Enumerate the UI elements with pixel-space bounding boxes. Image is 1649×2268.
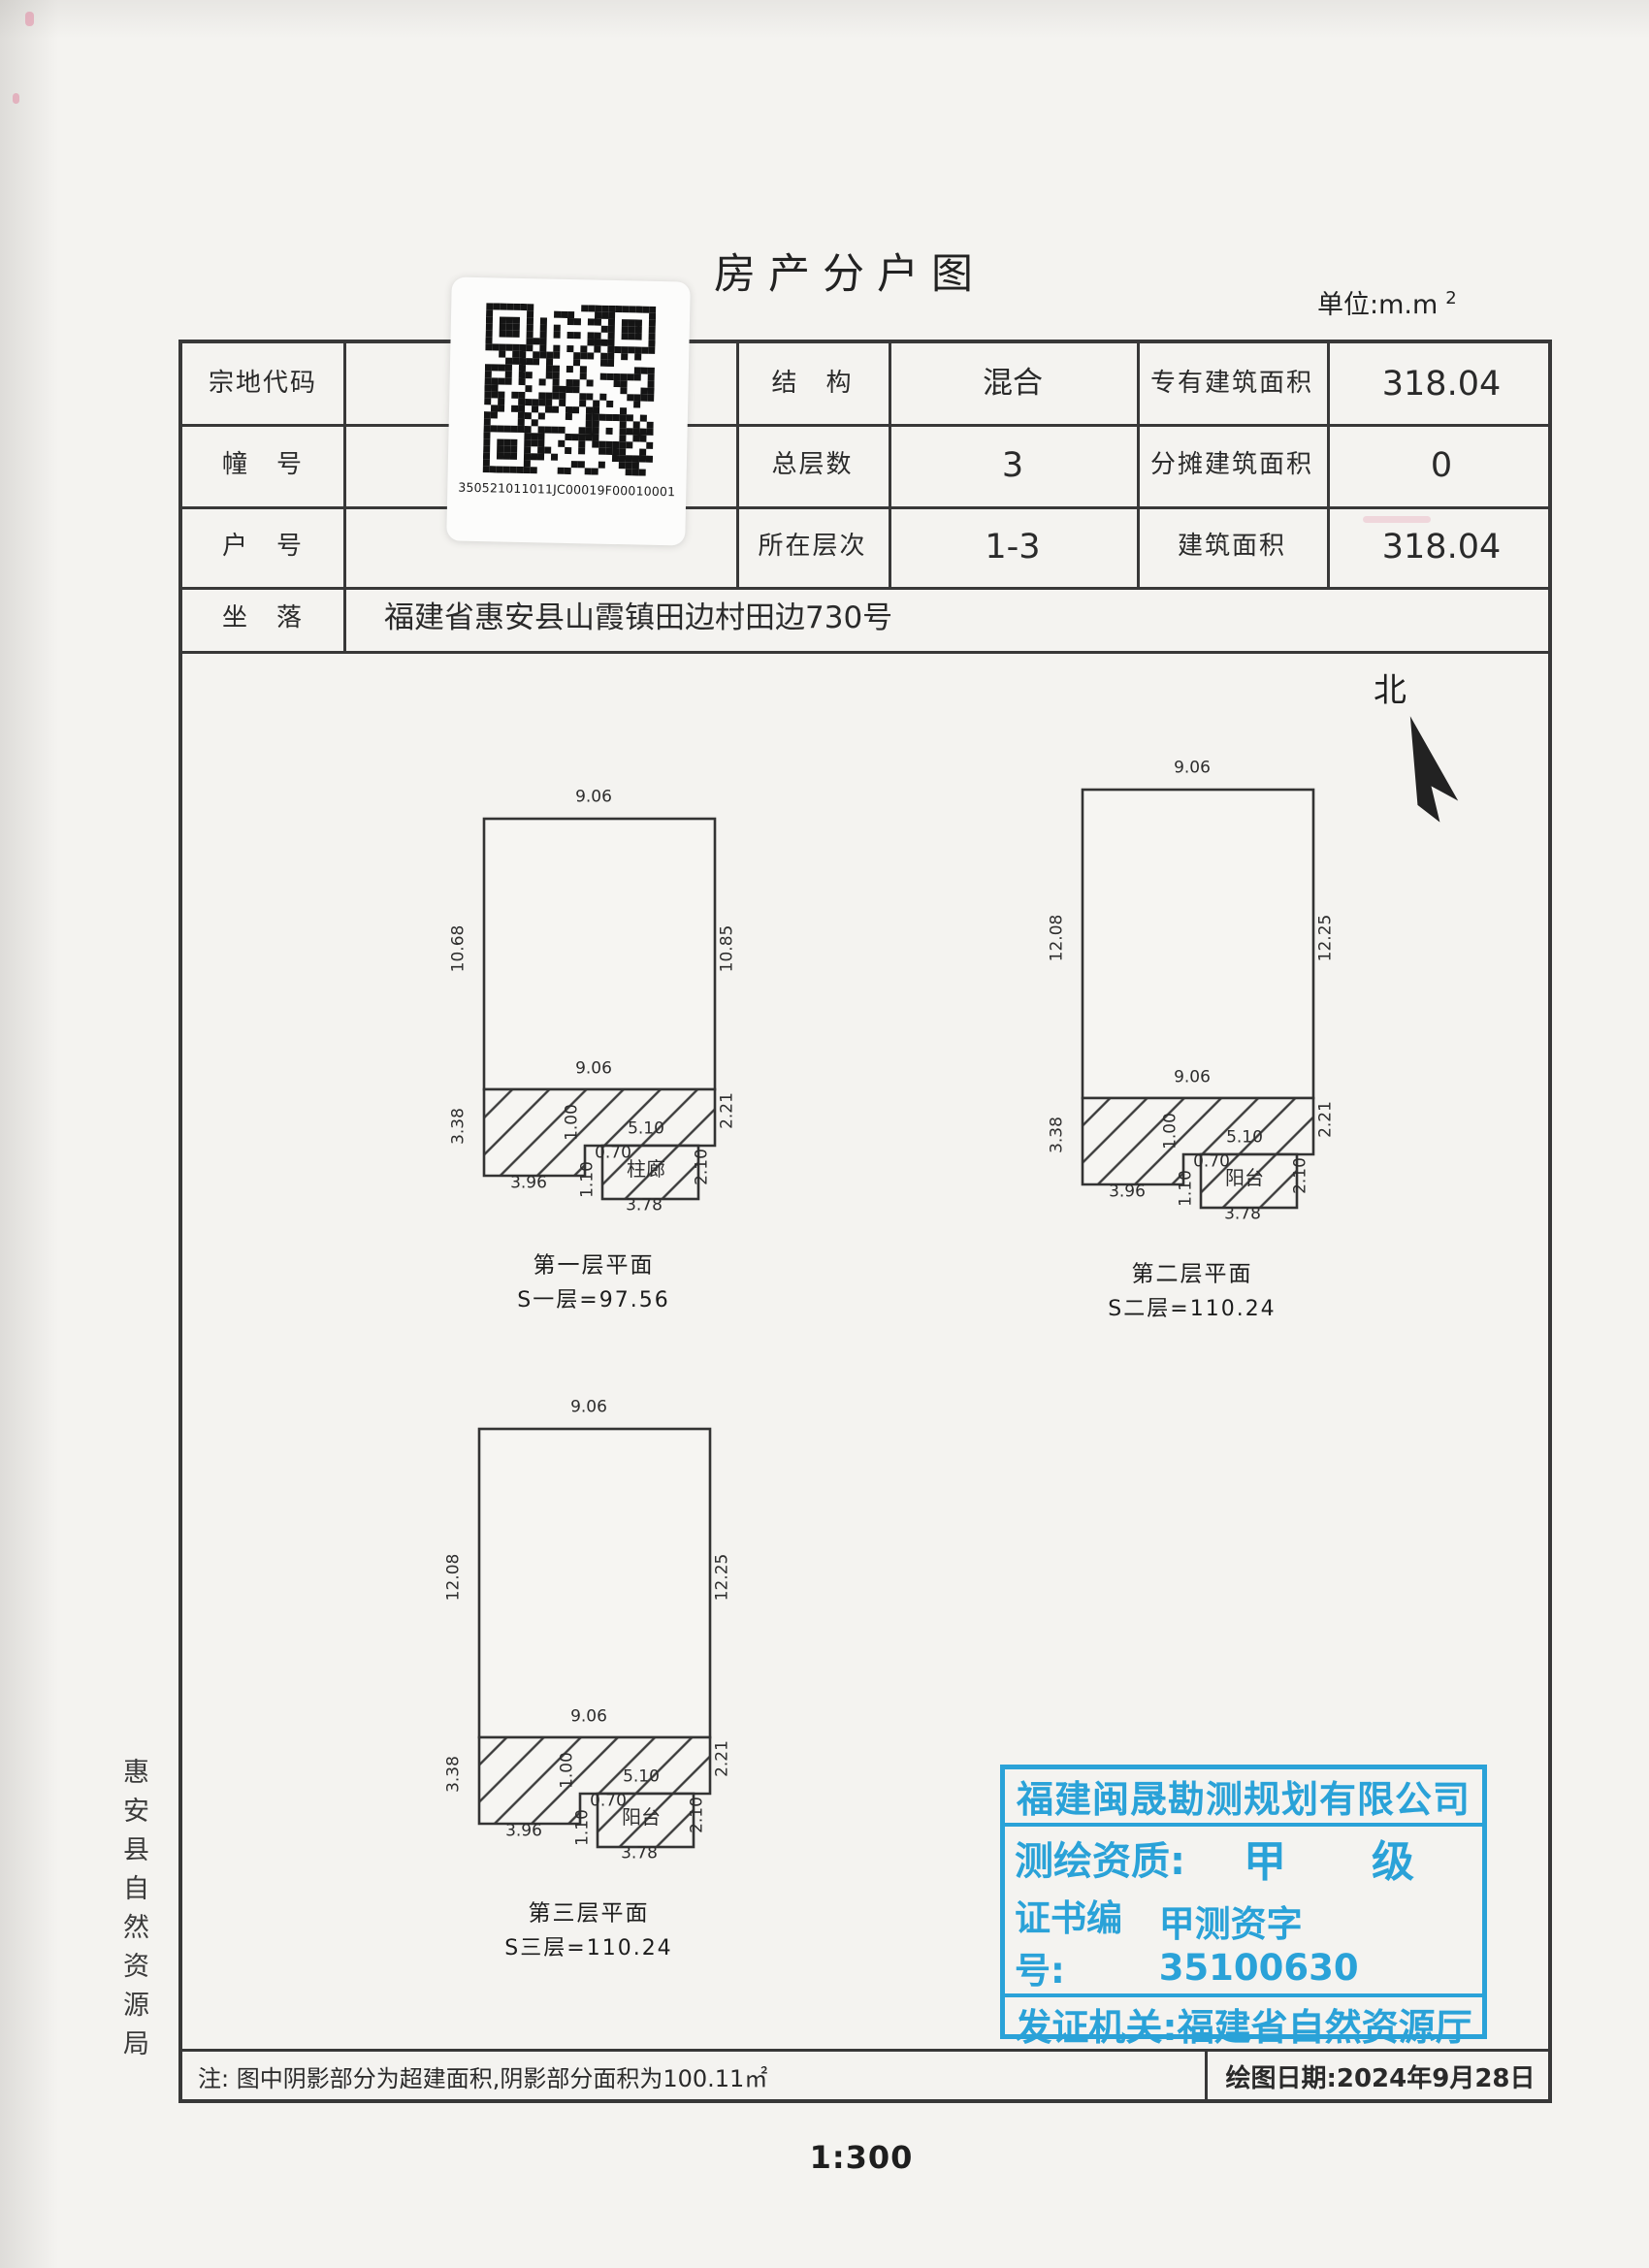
shared-area-label: 分摊建筑面积 xyxy=(1137,424,1327,506)
location-value: 福建省惠安县山霞镇田边村田边730号 xyxy=(343,587,1556,651)
qr-code xyxy=(482,303,656,476)
scan-edge-shadow-left xyxy=(0,0,58,2268)
page-title: 房产分户图 xyxy=(714,241,986,301)
room-label: 阳台 xyxy=(622,1807,661,1827)
unit-label: 单位:m.m2 xyxy=(1317,283,1457,321)
dimension-label: 9.06 xyxy=(570,1709,607,1726)
shared-area-value: 0 xyxy=(1327,424,1556,506)
dimension-label: 5.10 xyxy=(628,1121,664,1138)
dimension-label: 2.21 xyxy=(715,1740,731,1777)
dimension-label: 1.10 xyxy=(1179,1170,1195,1207)
dimension-label: 3.78 xyxy=(626,1198,663,1215)
dimension-label: 9.06 xyxy=(575,790,612,806)
stamp-cert-label: 证书编号: xyxy=(1015,1889,1159,1993)
drawing-date: 绘图日期:2024年9月28日 xyxy=(1205,2049,1556,2104)
unit-text: 单位:m.m xyxy=(1317,290,1438,320)
map-scale: 1:300 xyxy=(784,2139,939,2176)
dimension-label: 3.38 xyxy=(1050,1117,1066,1153)
scanned-property-plan-document: 房产分户图 单位:m.m2 宗地代码 幢 号 户 号 坐 落 福建省惠安县山霞镇… xyxy=(0,0,1649,2268)
plan-area-formula: S一层=97.56 xyxy=(517,1290,669,1312)
dimension-label: 1.00 xyxy=(565,1104,581,1141)
room-label: 阳台 xyxy=(1225,1168,1264,1187)
dimension-label: 2.10 xyxy=(1293,1157,1309,1194)
stamp-cert-value: 甲测资字35100630 xyxy=(1159,1895,1472,1989)
dimension-label: 12.08 xyxy=(446,1554,463,1602)
dimension-label: 1.00 xyxy=(1163,1113,1180,1150)
dimension-label: 3.78 xyxy=(1224,1207,1261,1223)
stamp-issuer-label: 发证机关: xyxy=(1015,1997,1177,2051)
stamp-company: 福建闽晟勘测规划有限公司 xyxy=(1005,1769,1482,1827)
plan-caption: 第二层平面 xyxy=(1132,1264,1253,1286)
plan-caption: 第一层平面 xyxy=(533,1255,655,1278)
building-area-value: 318.04 xyxy=(1327,506,1556,587)
total-floors-value: 3 xyxy=(889,424,1137,506)
dimension-label: 2.21 xyxy=(1318,1101,1335,1138)
dimension-label: 9.06 xyxy=(1174,1070,1211,1086)
floor-range-value: 1-3 xyxy=(889,506,1137,587)
structure-value: 混合 xyxy=(889,343,1137,424)
dimension-label: 5.10 xyxy=(1226,1130,1263,1147)
dimension-label: 5.10 xyxy=(623,1769,660,1786)
table-line xyxy=(182,651,1548,654)
dimension-label: 12.25 xyxy=(715,1554,731,1602)
stamp-qualification-label: 测绘资质: xyxy=(1015,1830,1185,1886)
dimension-label: 9.06 xyxy=(1174,761,1211,777)
surveyor-stamp: 福建闽晟勘测规划有限公司 测绘资质: 甲 级 证书编号: 甲测资字3510063… xyxy=(1000,1765,1487,2039)
agency-vertical-text: 惠安县自然资源局 xyxy=(114,1758,152,2126)
scan-speck xyxy=(13,93,19,104)
dimension-label: 3.96 xyxy=(510,1176,547,1192)
plan-area-formula: S二层=110.24 xyxy=(1108,1299,1276,1320)
north-indicator: 北 xyxy=(1370,664,1476,828)
dimension-label: 3.38 xyxy=(446,1756,463,1793)
qr-code-text: 350521011011JC00019F00010001 xyxy=(458,480,675,500)
stamp-qualification-value: 甲 级 xyxy=(1185,1827,1472,1889)
unit-no-label: 户 号 xyxy=(182,506,343,587)
dimension-label: 10.85 xyxy=(720,924,736,972)
qr-code-pattern xyxy=(482,303,656,476)
dimension-label: 12.25 xyxy=(1318,915,1335,962)
exclusive-area-label: 专有建筑面积 xyxy=(1137,343,1327,424)
dimension-label: 1.00 xyxy=(560,1752,576,1789)
north-label: 北 xyxy=(1374,664,1406,711)
plan-caption: 第三层平面 xyxy=(529,1903,650,1926)
dimension-label: 1.10 xyxy=(575,1809,592,1846)
plan-area-formula: S三层=110.24 xyxy=(504,1938,672,1960)
dimension-label: 9.06 xyxy=(570,1400,607,1416)
unit-exponent: 2 xyxy=(1445,288,1456,308)
parcel-code-label: 宗地代码 xyxy=(182,343,343,424)
building-area-label: 建筑面积 xyxy=(1137,506,1327,587)
dimension-label: 3.78 xyxy=(621,1846,658,1863)
location-label: 坐 落 xyxy=(182,587,343,651)
total-floors-label: 总层数 xyxy=(736,424,889,506)
dimension-label: 1.10 xyxy=(580,1161,597,1198)
scan-edge-shadow-top xyxy=(0,0,1649,39)
floor-range-label: 所在层次 xyxy=(736,506,889,587)
qr-sticker: 350521011011JC00019F00010001 xyxy=(446,276,691,545)
dimension-label: 2.10 xyxy=(695,1149,711,1185)
stamp-issuer-value: 福建省自然资源厅 xyxy=(1178,1997,1472,2051)
dimension-label: 2.21 xyxy=(720,1092,736,1129)
dimension-label: 3.38 xyxy=(451,1108,468,1145)
room-label: 柱廊 xyxy=(627,1159,665,1179)
scan-speck xyxy=(25,12,34,26)
stamp-issuer: 发证机关: 福建省自然资源厅 xyxy=(1005,1997,1482,2051)
shaded-area-note: 注: 图中阴影部分为超建面积,阴影部分面积为100.11㎡ xyxy=(182,2049,1205,2104)
stamp-middle: 测绘资质: 甲 级 证书编号: 甲测资字35100630 xyxy=(1005,1827,1482,1997)
exclusive-area-value: 318.04 xyxy=(1327,343,1556,424)
north-arrow-icon xyxy=(1403,714,1465,830)
dimension-label: 3.96 xyxy=(505,1824,542,1840)
dimension-label: 3.96 xyxy=(1109,1184,1146,1201)
dimension-label: 12.08 xyxy=(1050,915,1066,962)
dimension-label: 10.68 xyxy=(451,924,468,972)
structure-label: 结 构 xyxy=(736,343,889,424)
dimension-label: 9.06 xyxy=(575,1061,612,1078)
building-no-label: 幢 号 xyxy=(182,424,343,506)
dimension-label: 2.10 xyxy=(690,1797,706,1833)
